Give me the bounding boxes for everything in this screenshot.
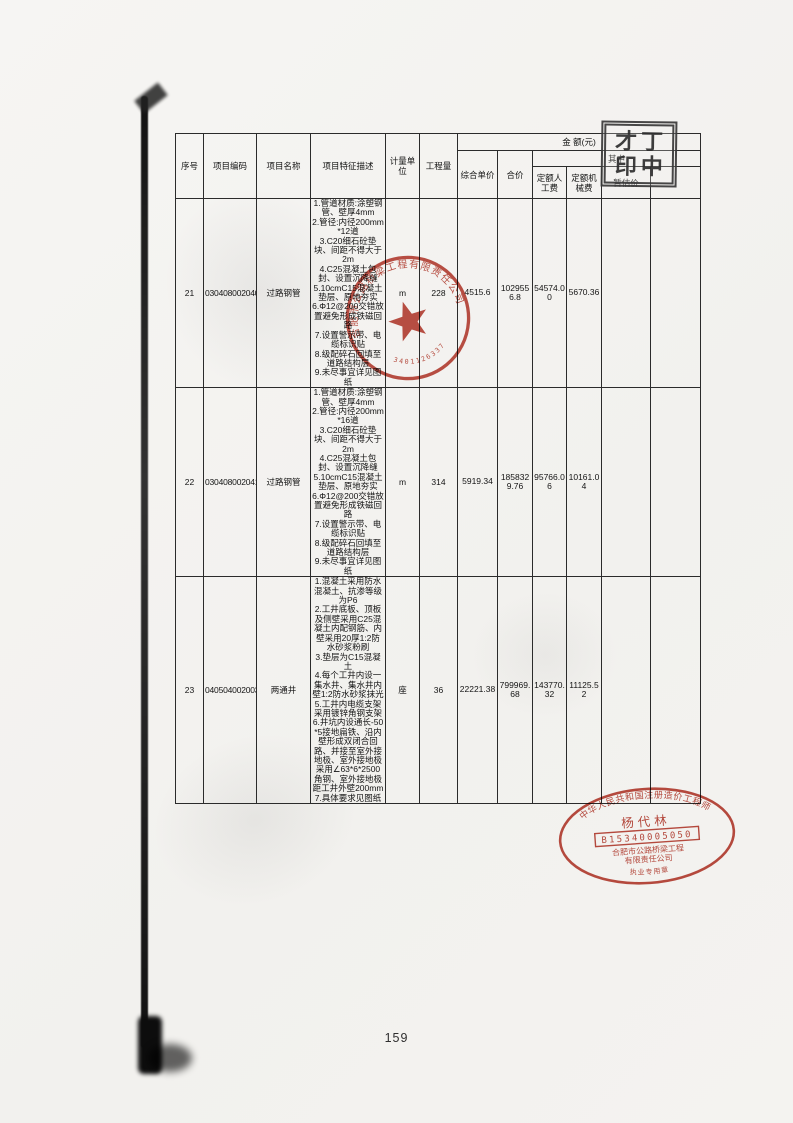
cell-labor: 95766.06 (533, 388, 567, 577)
cell-total-price: 799969.68 (498, 577, 533, 804)
oval-engineer-stamp: 中华人民共和国注册造价工程师 杨代林 B15340005050 合肥市公路桥梁工… (551, 780, 743, 892)
cell-machine: 11125.52 (567, 577, 602, 804)
cell-name: 两通井 (257, 577, 311, 804)
header-code: 项目编码 (204, 134, 257, 199)
cell-unit-price: 5919.34 (458, 388, 498, 577)
header-unit-price: 综合单价 (458, 151, 498, 199)
cell-total-price: 1029556.8 (498, 199, 533, 388)
cell-blank (651, 199, 701, 388)
cell-unit: 座 (386, 577, 420, 804)
cell-name: 过路钢管 (257, 388, 311, 577)
cell-unit: m (386, 388, 420, 577)
header-unit: 计量单位 (386, 134, 420, 199)
cell-code: 040504002003 (204, 577, 257, 804)
scan-corner-mark (134, 82, 167, 113)
header-name: 项目名称 (257, 134, 311, 199)
cell-seq: 22 (176, 388, 204, 577)
cell-features: 1.混凝土采用防水混凝土、抗渗等级为P6 2.工井底板、顶板及侧壁采用C25混凝… (311, 577, 386, 804)
cell-code: 030408002041 (204, 388, 257, 577)
cell-quantity: 36 (420, 577, 458, 804)
page-number: 159 (0, 1031, 793, 1045)
header-labor: 定额人工费 (533, 167, 567, 199)
svg-text:合肥市公路桥梁工程有限责任公司: 合肥市公路桥梁工程有限责任公司 (337, 247, 466, 340)
scan-bottom-smudge (148, 1044, 192, 1072)
svg-text:执业专用章: 执业专用章 (629, 864, 670, 877)
header-machine: 定额机械费 (567, 167, 602, 199)
boq-table: 序号 项目编码 项目名称 项目特征描述 计量单位 工程量 金 额(元) 综合单价… (175, 133, 701, 804)
cell-machine: 10161.04 (567, 388, 602, 577)
cell-blank (651, 577, 701, 804)
cell-quantity: 314 (420, 388, 458, 577)
stamp-text: 印中 (606, 154, 672, 180)
header-seq: 序号 (176, 134, 204, 199)
cell-estimate (602, 388, 651, 577)
cell-estimate (602, 577, 651, 804)
cell-code: 030408002040 (204, 199, 257, 388)
cell-features: 1.管道材质:涂塑钢管、壁厚4mm 2.管径:内径200mm*16道 3.C20… (311, 388, 386, 577)
scan-edge-band (141, 96, 148, 1048)
cell-seq: 21 (176, 199, 204, 388)
cell-blank (651, 388, 701, 577)
cell-machine: 5670.36 (567, 199, 602, 388)
header-quantity: 工程量 (420, 134, 458, 199)
cell-estimate (602, 199, 651, 388)
cell-labor: 54574.00 (533, 199, 567, 388)
round-company-seal: 合肥市公路桥梁工程有限责任公司 3401126337 (337, 247, 479, 389)
cell-seq: 23 (176, 577, 204, 804)
cell-name: 过路钢管 (257, 199, 311, 388)
stamp-bottom-text: 执业专用章 (629, 864, 670, 877)
stamp-text: 才丁 (606, 129, 672, 155)
stamp-person-name: 杨代林 (621, 812, 671, 830)
cell-unit-price: 22221.38 (458, 577, 498, 804)
table-row: 22 030408002041 过路钢管 1.管道材质:涂塑钢管、壁厚4mm 2… (176, 388, 701, 577)
table-row: 23 040504002003 两通井 1.混凝土采用防水混凝土、抗渗等级为P6… (176, 577, 701, 804)
cell-total-price: 1858329.76 (498, 388, 533, 577)
square-ink-stamp: 才丁 印中 (601, 120, 678, 187)
header-total-price: 合价 (498, 151, 533, 199)
star-icon (384, 296, 433, 344)
seal-company-text: 合肥市公路桥梁工程有限责任公司 (337, 247, 466, 340)
header-features: 项目特征描述 (311, 134, 386, 199)
cell-labor: 143770.32 (533, 577, 567, 804)
